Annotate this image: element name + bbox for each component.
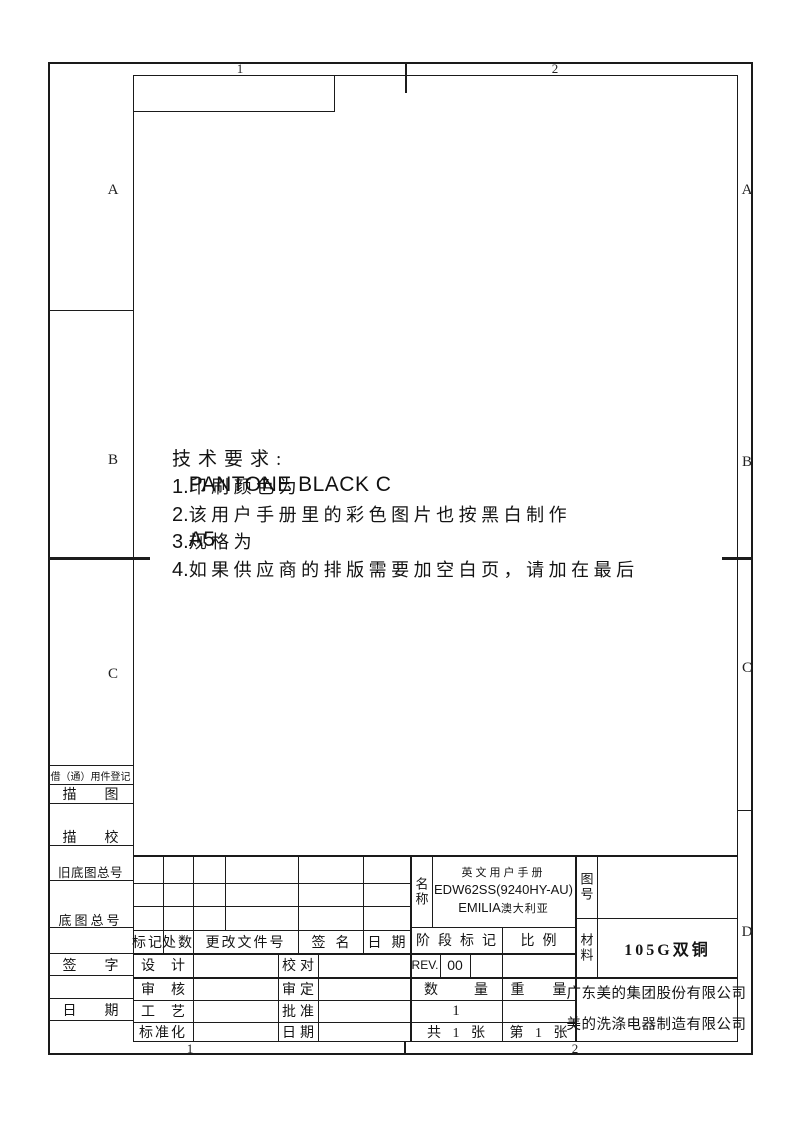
blank-cell [48, 881, 133, 911]
blank-cell [48, 928, 133, 954]
design-label: 设计 [133, 953, 193, 977]
zone-label-left-b: B [104, 450, 122, 470]
name-vertical-label: 名称 [410, 856, 432, 927]
zone-label-right-d: D [738, 922, 756, 942]
left-zone-divider [48, 310, 133, 311]
review-label: 审核 [133, 977, 193, 1000]
revision-count-header: 处数 [163, 930, 193, 953]
sheet-number: 第 1 张 [502, 1022, 575, 1042]
rev-label: REV. [410, 953, 440, 977]
item-number: 3. [172, 531, 189, 553]
part-number-box [133, 75, 335, 112]
tech-req-item-4: 4.如果供应商的排版需要加空白页，请加在最后 [172, 557, 639, 585]
drawing-no-vertical-label: 图号 [575, 856, 597, 918]
approve-label: 批准 [278, 1000, 318, 1022]
item-chinese-text: 该用户手册里的彩色图片也按黑白制作 [189, 505, 572, 525]
tech-req-item-2: 2.该用户手册里的彩色图片也按黑白制作 [172, 502, 639, 530]
item-number: 1. [172, 476, 189, 498]
zone-label-bottom-1: 1 [150, 1042, 230, 1055]
date-row-label: 日期 [278, 1022, 318, 1042]
master-no-label: 底图总号 [48, 911, 133, 928]
model-name: EMILIA [458, 900, 501, 915]
quantity-header: 数量 [410, 977, 502, 1000]
rev-value: 00 [440, 953, 470, 977]
zone-label-left-a: A [104, 180, 122, 200]
tech-req-item-3: 3.规格为A5 [172, 529, 639, 557]
process-label: 工艺 [133, 1000, 193, 1022]
weight-header: 重量 [502, 977, 575, 1000]
technical-requirements-note: 技术要求: 1.印刷颜色为PANTONE BLACK C 2.该用户手册里的彩色… [172, 446, 639, 584]
top-center-mark [405, 62, 407, 93]
revision-mark-header: 标记 [133, 930, 163, 953]
drawing-sheet: 1 2 1 2 A B C A B C D 技术要求: 1.印刷颜色为PANTO… [0, 0, 802, 1134]
zone-label-bottom-2: 2 [535, 1042, 615, 1055]
borrowed-parts-register-label: 借（通）用件登记 [48, 766, 133, 785]
zone-label-right-c: C [738, 658, 756, 678]
old-master-no-label: 旧底图总号 [48, 863, 133, 881]
zone-label-top-2: 2 [515, 62, 595, 75]
item-number: 2. [172, 504, 189, 526]
zone-label-right-a: A [738, 180, 756, 200]
material-value: 105G双铜 [597, 918, 738, 977]
tech-req-title: 技术要求: [172, 446, 639, 474]
right-center-mark [722, 557, 753, 560]
tracing-label: 描图 [48, 785, 133, 804]
signature-label: 签字 [48, 954, 133, 976]
model-name-line: EMILIA澳大利亚 [458, 899, 549, 917]
date-label: 日期 [48, 999, 133, 1021]
change-file-no-header: 更改文件号 [193, 930, 298, 953]
signature-header: 签名 [298, 930, 363, 953]
grid-line [225, 855, 226, 930]
company-name-2: 美的洗涤电器制造有限公司 [567, 1010, 747, 1040]
grid-line [133, 906, 410, 907]
sheets-total: 共 1 张 [410, 1022, 502, 1042]
company-box: 广东美的集团股份有限公司 美的洗涤电器制造有限公司 [575, 977, 738, 1042]
tech-req-item-1: 1.印刷颜色为PANTONE BLACK C [172, 474, 639, 502]
item-chinese-text: 如果供应商的排版需要加空白页，请加在最后 [189, 560, 639, 580]
doc-title-cn: 英文用户手册 [462, 866, 546, 881]
stage-mark-header: 阶段标记 [410, 927, 502, 953]
bottom-center-mark [404, 1042, 406, 1055]
blank-cell [48, 1021, 133, 1043]
region-cn: 澳大利亚 [501, 903, 549, 915]
left-attachment-strip: 借（通）用件登记 描图 描校 旧底图总号 底图总号 签字 日期 [48, 765, 133, 1042]
company-name-1: 广东美的集团股份有限公司 [567, 979, 747, 1009]
zone-label-left-c: C [104, 664, 122, 684]
quantity-value: 1 [410, 1000, 502, 1022]
item-number: 4. [172, 559, 189, 581]
proofread-label: 校对 [278, 953, 318, 977]
document-name-box: 英文用户手册 EDW62SS(9240HY-AU) EMILIA澳大利亚 [432, 856, 575, 927]
scale-header: 比例 [502, 927, 575, 953]
blank-cell [48, 846, 133, 863]
item-latin-overlay: PANTONE BLACK C [189, 471, 392, 499]
examine-label: 审定 [278, 977, 318, 1000]
item-latin-overlay: A5 [189, 526, 216, 554]
grid-line [470, 953, 471, 977]
standardization-label: 标准化 [133, 1022, 193, 1042]
left-center-mark [48, 557, 150, 560]
material-vertical-label: 材料 [575, 918, 597, 977]
blank-cell [48, 976, 133, 999]
zone-label-top-1: 1 [200, 62, 280, 75]
model-number: EDW62SS(9240HY-AU) [434, 881, 573, 899]
tracing-check-label: 描校 [48, 829, 133, 846]
zone-label-right-b: B [738, 452, 756, 472]
grid-line [318, 953, 319, 1042]
blank-cell [48, 804, 133, 829]
date-header: 日期 [363, 930, 410, 953]
right-zone-divider [738, 810, 753, 811]
grid-line [133, 883, 410, 884]
